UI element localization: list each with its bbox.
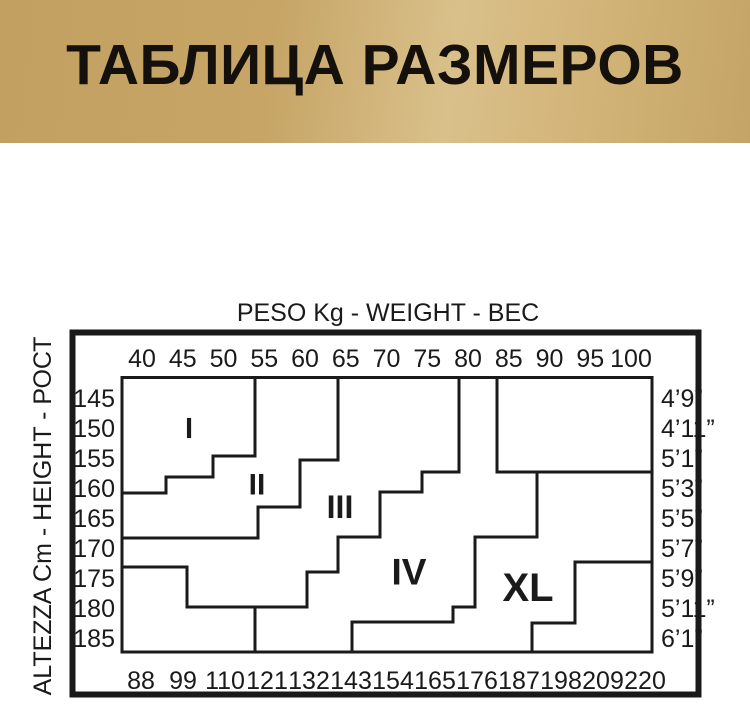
weight-kg-tick: 90 bbox=[536, 345, 564, 373]
size-region-label-III: III bbox=[327, 489, 354, 525]
weight-lb-tick: 198 bbox=[540, 667, 582, 695]
weight-lb-tick: 110 bbox=[205, 667, 245, 695]
weight-lb-tick: 121 bbox=[246, 667, 288, 695]
weight-lb-tick: 187 bbox=[498, 667, 540, 695]
weight-kg-tick: 70 bbox=[373, 345, 401, 373]
weight-lb-tick: 165 bbox=[414, 667, 456, 695]
weight-lb-tick: 143 bbox=[330, 667, 372, 695]
height-axis-title: ALTEZZA Cm - HEIGHT - РОСТ bbox=[29, 337, 57, 696]
weight-kg-tick: 65 bbox=[332, 345, 360, 373]
weight-lb-tick: 176 bbox=[456, 667, 498, 695]
height-ftin-tick: 5’5” bbox=[661, 505, 703, 533]
weight-lb-tick: 132 bbox=[288, 667, 330, 695]
height-cm-tick: 185 bbox=[73, 625, 115, 653]
weight-kg-tick: 85 bbox=[495, 345, 523, 373]
weight-kg-tick: 55 bbox=[250, 345, 278, 373]
weight-kg-tick: 100 bbox=[610, 345, 652, 373]
size-chart: PESO Kg - WEIGHT - ВЕС ALTEZZA Cm - HEIG… bbox=[0, 143, 750, 704]
weight-kg-tick: 75 bbox=[413, 345, 441, 373]
height-cm-tick: 160 bbox=[73, 475, 115, 503]
height-ftin-tick: 4’9” bbox=[661, 385, 703, 413]
height-ftin-tick: 5’1” bbox=[661, 445, 703, 473]
boundary-top-right-box bbox=[497, 378, 652, 473]
size-boundaries bbox=[121, 378, 654, 654]
height-cm-tick: 165 bbox=[73, 505, 115, 533]
height-cm-tick: 155 bbox=[73, 445, 115, 473]
height-cm-tick: 145 bbox=[73, 385, 115, 413]
size-region-label-II: II bbox=[249, 469, 266, 502]
size-region-label-IV: IV bbox=[392, 552, 427, 593]
inner-border bbox=[122, 378, 652, 653]
gold-banner: ТАБЛИЦА РАЗМЕРОВ bbox=[0, 0, 750, 143]
boundary-size-2-3 bbox=[121, 378, 339, 539]
size-region-label-XL: XL bbox=[502, 566, 553, 610]
weight-axis-title: PESO Kg - WEIGHT - ВЕС bbox=[237, 299, 539, 327]
height-ftin-tick: 5’3” bbox=[661, 475, 703, 503]
height-cm-tick: 170 bbox=[73, 535, 115, 563]
weight-kg-tick: 50 bbox=[210, 345, 238, 373]
weight-lb-tick: 220 bbox=[624, 667, 666, 695]
weight-kg-tick: 95 bbox=[576, 345, 604, 373]
weight-lb-tick: 99 bbox=[169, 667, 197, 695]
axis-ticks: 4045505560657075808590951008899110121132… bbox=[73, 345, 714, 695]
chart-frame bbox=[73, 333, 699, 695]
weight-lb-tick: 154 bbox=[372, 667, 414, 695]
size-region-label-I: I bbox=[185, 413, 193, 445]
weight-kg-tick: 45 bbox=[169, 345, 197, 373]
height-ftin-tick: 5’7” bbox=[661, 535, 703, 563]
height-cm-tick: 150 bbox=[73, 415, 115, 443]
height-ftin-tick: 6’1” bbox=[661, 625, 703, 653]
height-ftin-tick: 5’9” bbox=[661, 565, 703, 593]
weight-kg-tick: 60 bbox=[291, 345, 319, 373]
weight-kg-tick: 80 bbox=[454, 345, 482, 373]
height-cm-tick: 180 bbox=[73, 595, 115, 623]
height-cm-tick: 175 bbox=[73, 565, 115, 593]
page-title: ТАБЛИЦА РАЗМЕРОВ bbox=[66, 32, 684, 98]
weight-lb-tick: 88 bbox=[127, 667, 155, 695]
height-ftin-tick: 4’11” bbox=[661, 415, 715, 443]
height-ftin-tick: 5’11” bbox=[661, 595, 715, 623]
outer-border bbox=[73, 333, 699, 695]
weight-lb-tick: 209 bbox=[582, 667, 624, 695]
weight-kg-tick: 40 bbox=[128, 345, 156, 373]
